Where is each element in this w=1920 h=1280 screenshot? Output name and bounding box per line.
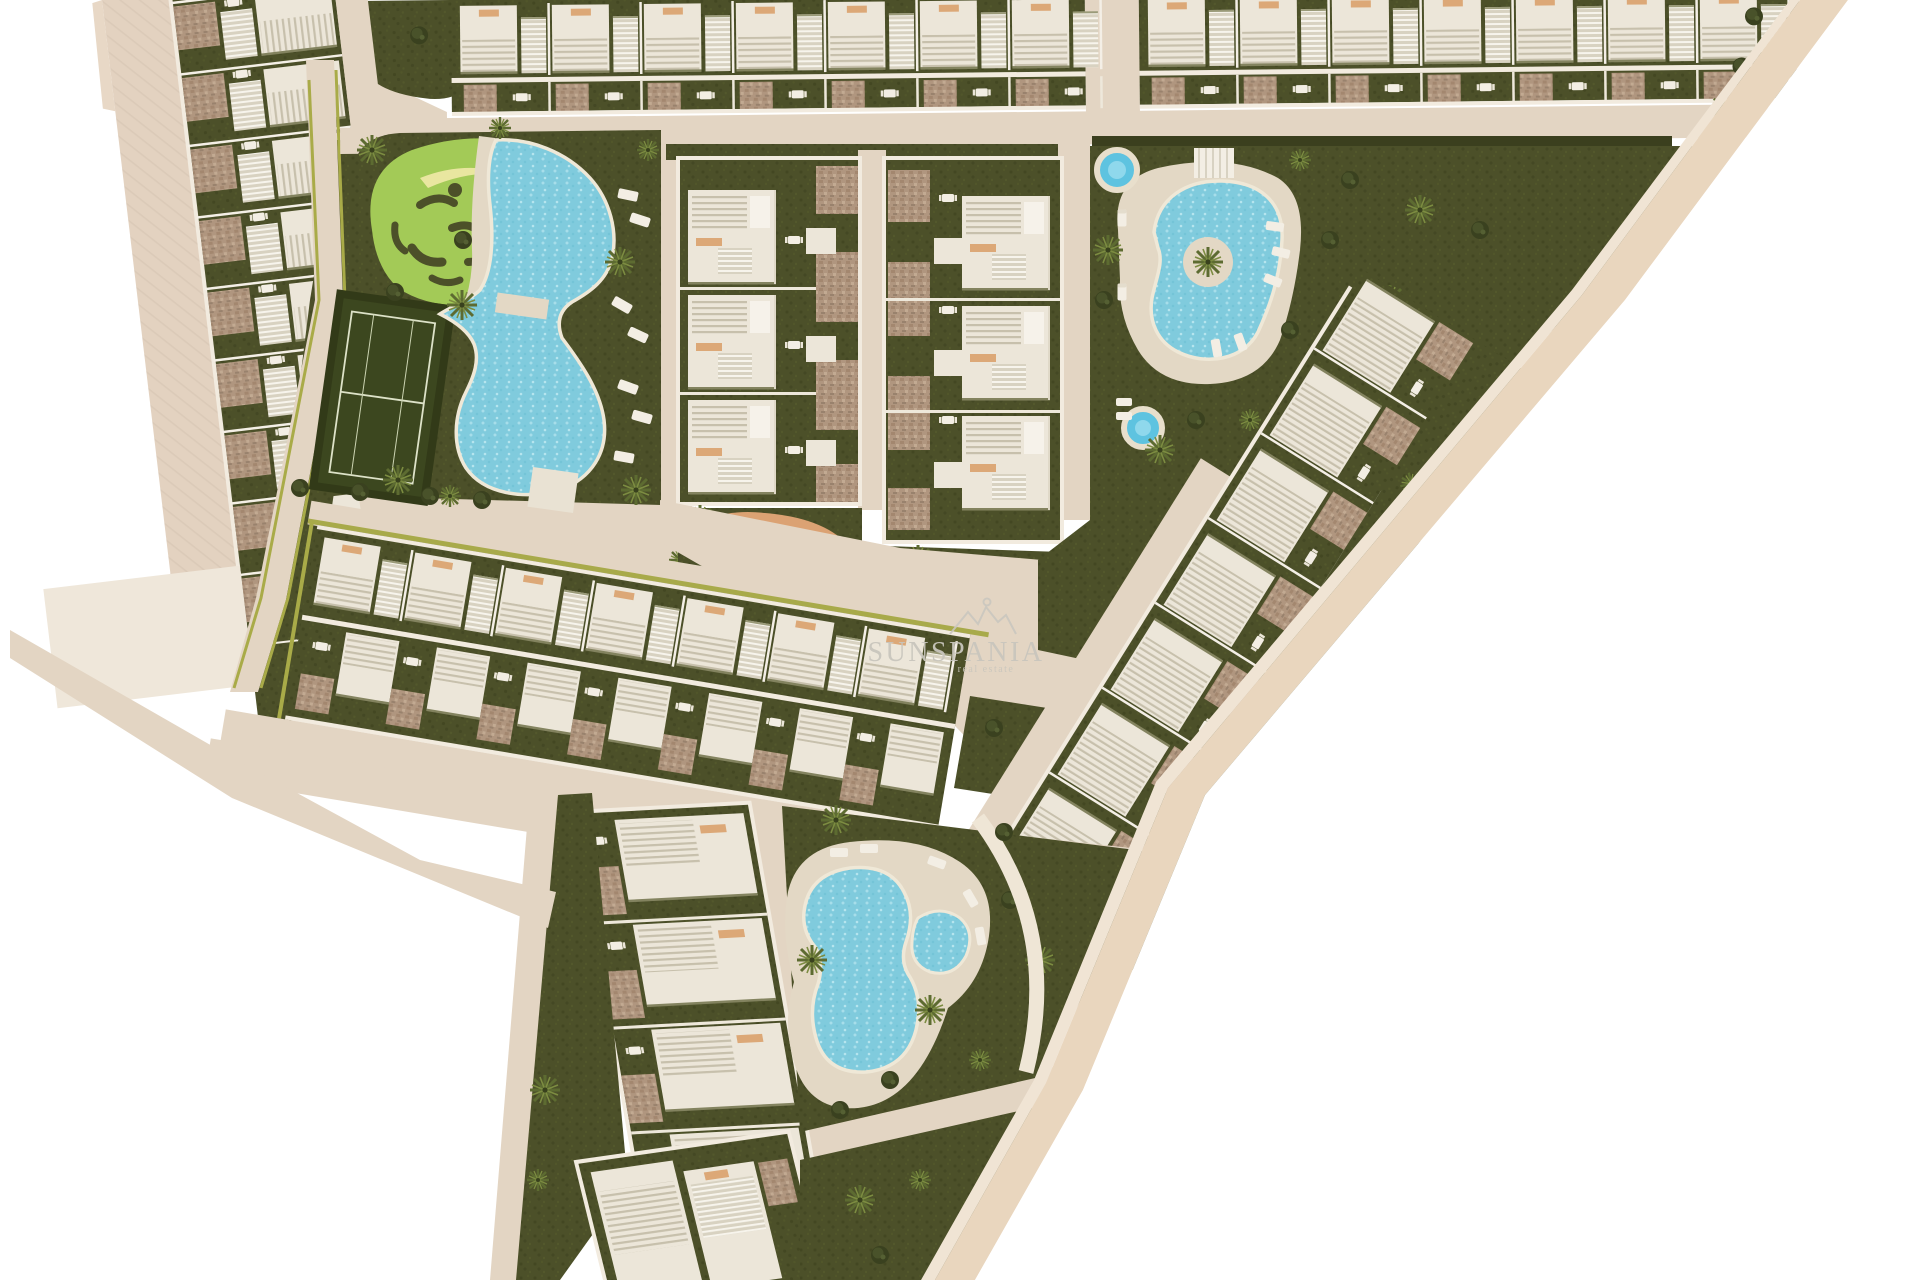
svg-text:real estate: real estate: [958, 664, 1015, 675]
svg-text:SUNSPANIA: SUNSPANIA: [867, 637, 1044, 668]
